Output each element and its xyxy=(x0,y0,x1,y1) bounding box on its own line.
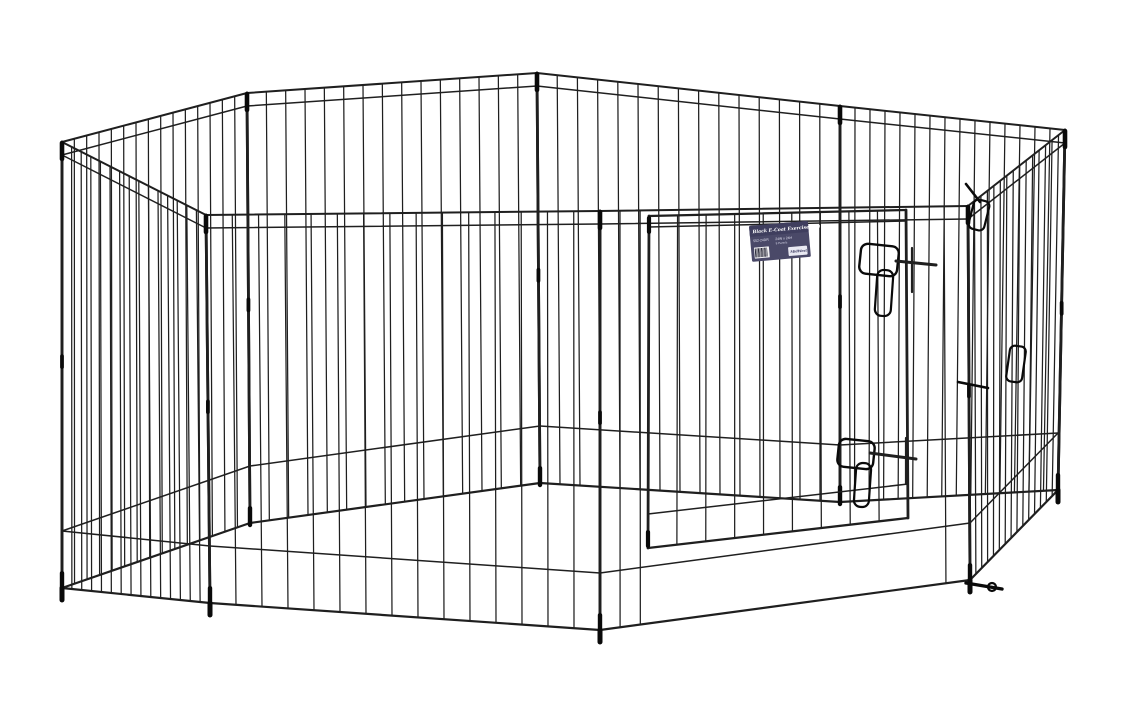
product-photo-exercise-pen: Black E-Coat Exercise Pen 552-24DR 24W x… xyxy=(0,0,1125,711)
brand-logo: MidWest xyxy=(788,246,808,257)
barcode xyxy=(754,246,770,258)
door-latch-bottom xyxy=(837,438,916,507)
pen-latch-hardware xyxy=(837,184,1027,591)
product-label-tag: Black E-Coat Exercise Pen 552-24DR 24W x… xyxy=(749,220,823,262)
exercise-pen-illustration: Black E-Coat Exercise Pen 552-24DR 24W x… xyxy=(0,0,1125,711)
pen-wire-panels xyxy=(62,73,1065,642)
pen-panel-2 xyxy=(537,73,840,502)
